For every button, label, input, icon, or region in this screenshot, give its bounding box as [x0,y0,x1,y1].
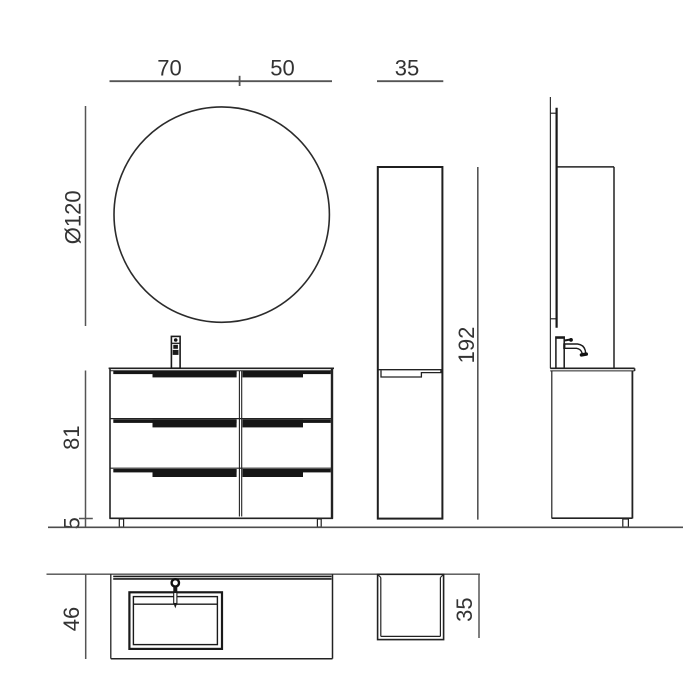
svg-text:81: 81 [59,425,84,449]
svg-text:Ø120: Ø120 [61,190,86,244]
svg-text:35: 35 [395,56,419,81]
svg-text:35: 35 [452,597,477,621]
svg-text:50: 50 [270,56,294,81]
svg-text:192: 192 [454,327,479,364]
svg-text:46: 46 [59,607,84,631]
svg-text:70: 70 [157,56,181,81]
